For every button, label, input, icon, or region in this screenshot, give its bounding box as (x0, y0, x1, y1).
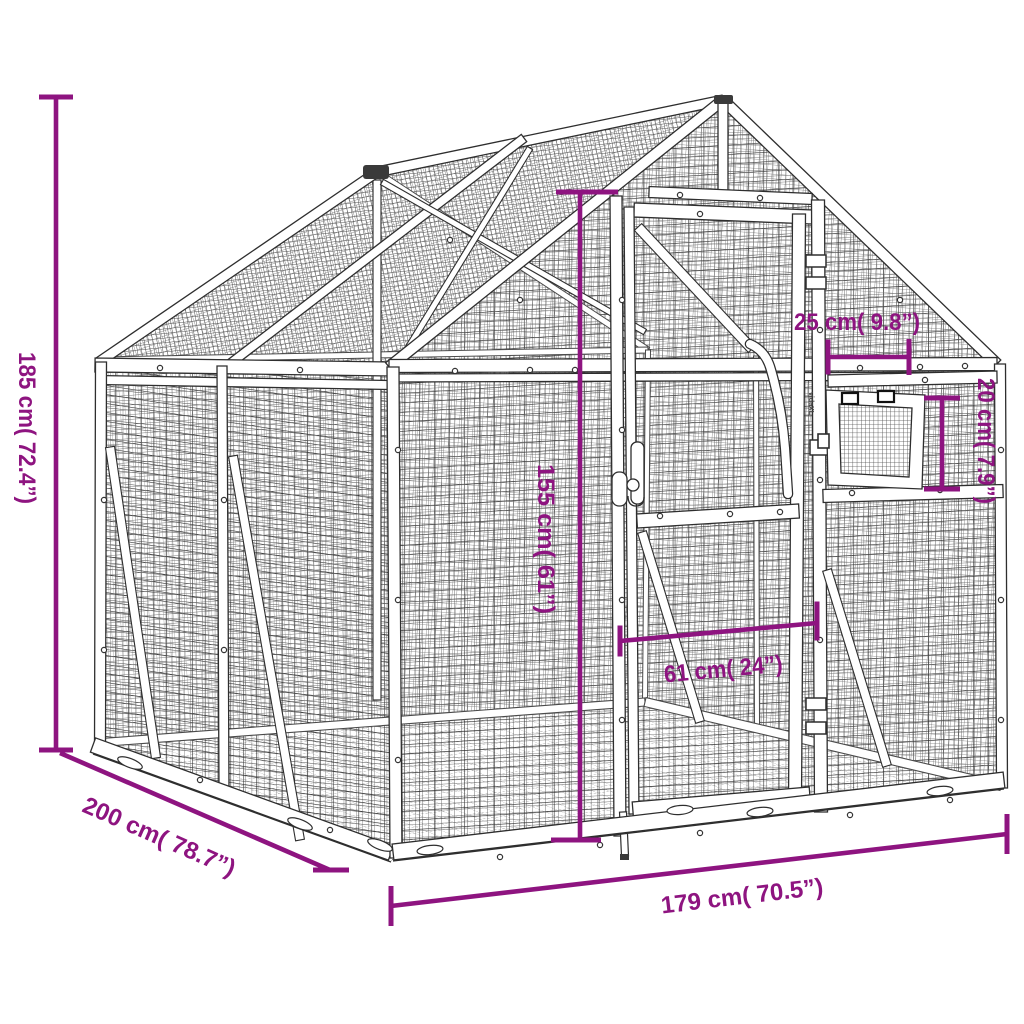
svg-text:vidaXL: vidaXL (807, 392, 814, 416)
svg-text:20 cm( 7.9”): 20 cm( 7.9”) (972, 378, 999, 504)
svg-text:185 cm( 72.4”): 185 cm( 72.4”) (13, 352, 40, 504)
svg-text:155 cm( 61”): 155 cm( 61”) (532, 464, 559, 614)
svg-text:25 cm( 9.8”): 25 cm( 9.8”) (794, 309, 920, 336)
